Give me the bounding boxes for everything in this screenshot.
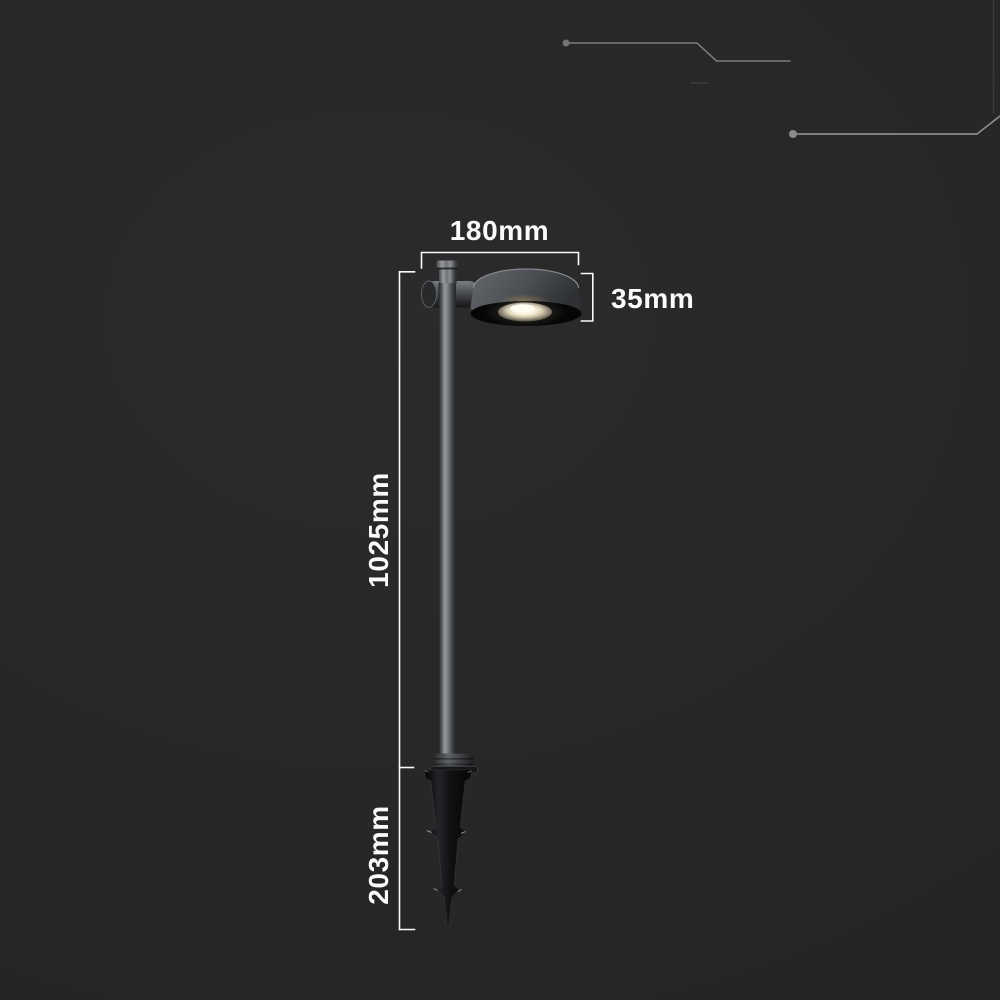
lens-hot-spot (511, 304, 535, 312)
circuit-line-upper (569, 43, 790, 61)
pole-top-cap (437, 261, 459, 269)
circuit-node-dot (789, 130, 797, 138)
circuit-line-lower (797, 116, 1000, 134)
dimension-label-spike-length: 203mm (365, 805, 393, 905)
dimension-label-head-width: 180mm (419, 217, 580, 245)
collar-groove (435, 764, 474, 766)
luminaire (422, 261, 582, 933)
cap-seam (437, 268, 458, 270)
dimension-bracket-head-height (582, 274, 593, 322)
dimension-label-head-height: 35mm (611, 285, 694, 313)
product-dimension-diagram: 180mm 35mm 1025mm 203mm (0, 0, 1000, 1000)
arm-end-cap (422, 281, 437, 307)
fixture-illustration (0, 0, 1000, 1000)
dimension-label-pole-height: 1025mm (365, 472, 393, 588)
dimension-lines (400, 253, 593, 930)
circuit-decoration (563, 0, 1000, 138)
collar-groove (435, 758, 474, 760)
ground-spike (424, 770, 472, 932)
pole (439, 283, 457, 754)
